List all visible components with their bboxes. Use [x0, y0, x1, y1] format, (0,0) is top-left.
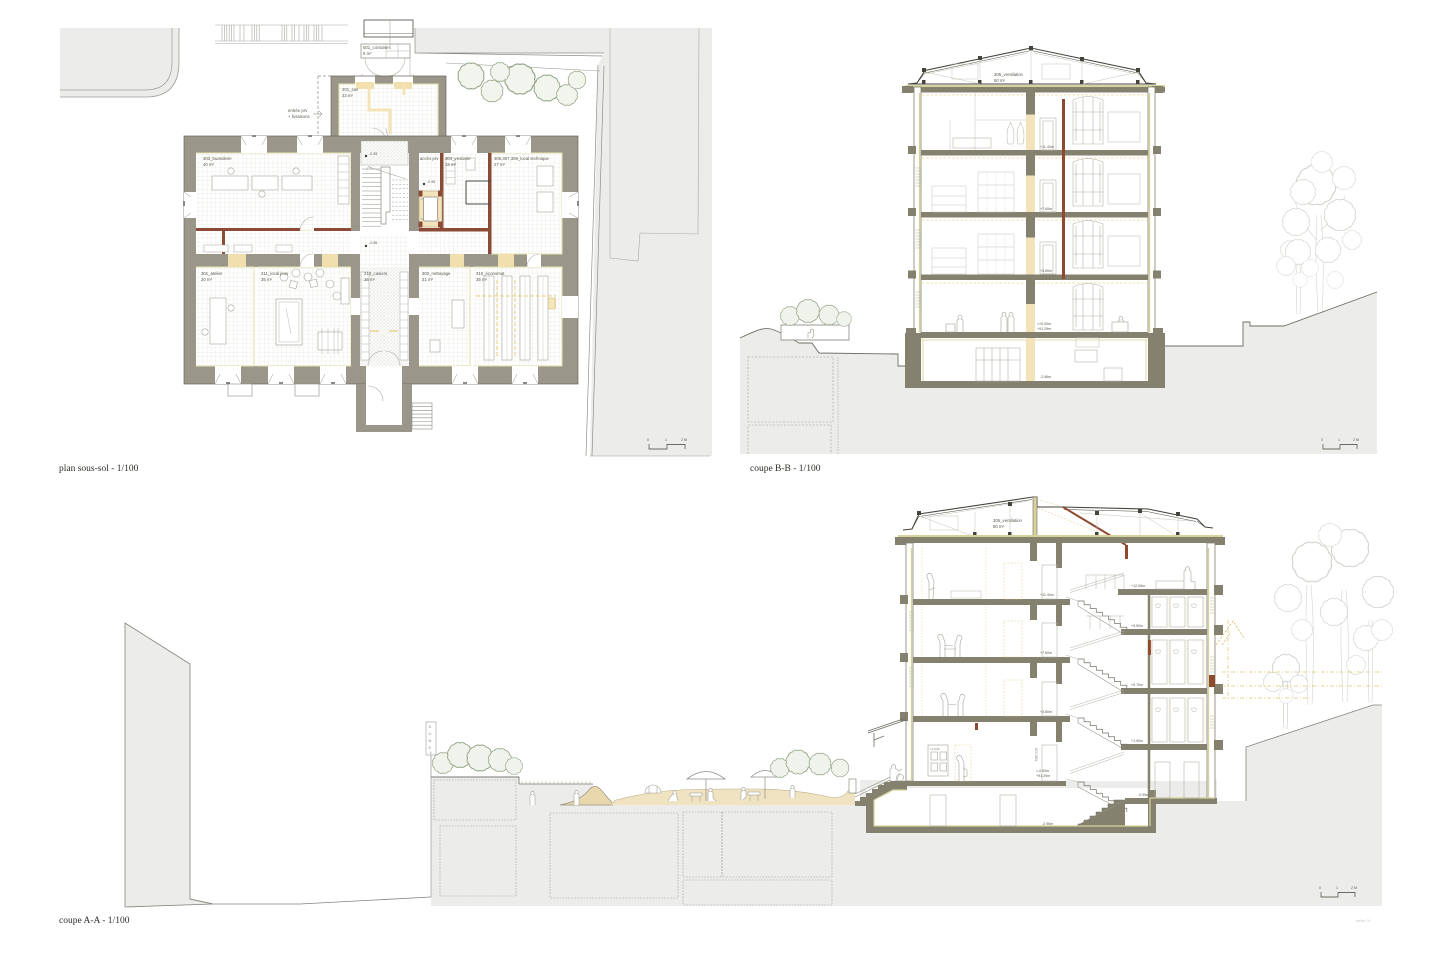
- svg-text:atelier 00: atelier 00: [1356, 919, 1370, 923]
- svg-text:23 m²: 23 m²: [342, 93, 354, 98]
- svg-text:0: 0: [647, 438, 649, 442]
- svg-text:6 m²: 6 m²: [363, 51, 372, 56]
- svg-text:-0.95: -0.95: [427, 180, 435, 184]
- svg-text:306,307,308_local technique: 306,307,308_local technique: [494, 156, 550, 161]
- svg-text:2 M: 2 M: [681, 438, 687, 442]
- svg-text:211_local jeux: 211_local jeux: [261, 271, 289, 276]
- svg-text:E: E: [429, 745, 432, 750]
- svg-text:+11.40m: +11.40m: [1040, 593, 1054, 597]
- svg-text:301_atelier: 301_atelier: [201, 271, 223, 276]
- svg-text:ACCUEIL: ACCUEIL: [1034, 748, 1038, 762]
- svg-text:+12.00m: +12.00m: [1131, 584, 1145, 588]
- svg-text:0: 0: [1319, 886, 1321, 890]
- svg-text:-2.96m: -2.96m: [1042, 822, 1053, 826]
- svg-text:-2.96: -2.96: [369, 241, 377, 245]
- svg-text:LA FINE: LA FINE: [930, 747, 940, 751]
- svg-text:+3.80m: +3.80m: [1040, 710, 1052, 714]
- svg-text:1: 1: [1336, 886, 1338, 890]
- svg-text:+7.60m: +7.60m: [1040, 207, 1052, 211]
- svg-text:coupe B-B - 1/100: coupe B-B - 1/100: [750, 464, 821, 474]
- svg-text:2 M: 2 M: [1353, 438, 1359, 442]
- svg-text:-0.95: -0.95: [369, 152, 377, 156]
- svg-text:12 m²: 12 m²: [445, 162, 457, 167]
- svg-text:+3.80m: +3.80m: [1040, 269, 1052, 273]
- svg-text:21 m²: 21 m²: [422, 277, 434, 282]
- svg-text:1: 1: [665, 438, 667, 442]
- svg-text:302_nettoyage: 302_nettoyage: [422, 271, 451, 276]
- svg-text:+7.60m: +7.60m: [1040, 651, 1052, 655]
- svg-text:D: D: [429, 724, 432, 729]
- svg-text:N: N: [429, 738, 432, 743]
- svg-text:304_vestiaire: 304_vestiaire: [445, 156, 471, 161]
- svg-text:501_contoises: 501_contoises: [363, 45, 391, 50]
- svg-text:+5.70m: +5.70m: [1131, 683, 1143, 687]
- svg-text:40 m²: 40 m²: [203, 162, 215, 167]
- svg-text:+9.50m: +9.50m: [1131, 624, 1143, 628]
- svg-text:27 m²: 27 m²: [494, 162, 506, 167]
- svg-text:plan sous-sol - 1/100: plan sous-sol - 1/100: [59, 464, 139, 474]
- svg-text:305_ventilation: 305_ventilation: [993, 518, 1023, 523]
- svg-text:16 m²: 16 m²: [364, 277, 376, 282]
- svg-text:35 m²: 35 m²: [261, 277, 273, 282]
- svg-text:+11.40m: +11.40m: [1040, 145, 1054, 149]
- svg-text:310_économat: 310_économat: [476, 271, 505, 276]
- svg-text:305_ventilation: 305_ventilation: [994, 72, 1024, 77]
- svg-text:+91.29m: +91.29m: [1036, 774, 1050, 778]
- svg-text:35 m²: 35 m²: [476, 277, 488, 282]
- svg-text:coupe A-A - 1/100: coupe A-A - 1/100: [59, 916, 130, 926]
- svg-text:+1.90m: +1.90m: [1131, 739, 1143, 743]
- svg-text:80 m²: 80 m²: [993, 524, 1005, 529]
- svg-text:303_buanderie: 303_buanderie: [203, 156, 232, 161]
- svg-text:20 m²: 20 m²: [201, 277, 213, 282]
- svg-text:0: 0: [1321, 438, 1323, 442]
- svg-text:U: U: [429, 731, 432, 736]
- svg-text:+91.29m: +91.29m: [1037, 327, 1051, 331]
- svg-text:accès prv: accès prv: [420, 156, 439, 161]
- svg-text:-2.96m: -2.96m: [1040, 375, 1051, 379]
- svg-text:-0.95m: -0.95m: [1138, 793, 1149, 797]
- svg-text:1: 1: [1338, 438, 1340, 442]
- svg-text:213_casiers: 213_casiers: [364, 271, 387, 276]
- svg-text:=-0.00m: =-0.00m: [1036, 769, 1049, 773]
- svg-text:entrée prv: entrée prv: [288, 108, 308, 113]
- svg-text:+ livraisons: + livraisons: [288, 114, 310, 119]
- svg-text:50 m²: 50 m²: [994, 78, 1006, 83]
- svg-text:201_sas: 201_sas: [342, 87, 358, 92]
- svg-text:≈+0.00m: ≈+0.00m: [1037, 322, 1051, 326]
- svg-text:2 M: 2 M: [1351, 886, 1357, 890]
